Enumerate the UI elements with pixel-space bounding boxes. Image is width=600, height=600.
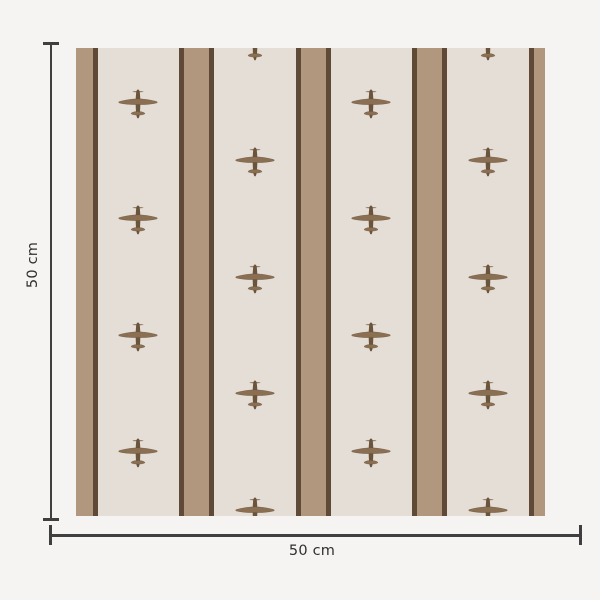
vertical-dimension-label: 50 cm: [25, 242, 41, 288]
airplane-icon: [468, 497, 508, 517]
airplane-icon: [118, 438, 158, 470]
airplane-icon: [235, 48, 275, 63]
airplane-icon: [468, 264, 508, 296]
airplane-icon: [235, 264, 275, 296]
airplane-icon: [118, 89, 158, 121]
horizontal-dimension-label: 50 cm: [289, 543, 335, 559]
vertical-dimension-line: [50, 43, 52, 520]
stripe: [179, 48, 214, 516]
airplane-icon: [351, 438, 391, 470]
airplane-icon: [235, 147, 275, 179]
airplane-icon: [235, 497, 275, 517]
airplane-icon: [351, 205, 391, 237]
airplane-icon: [468, 147, 508, 179]
airplane-icon: [351, 89, 391, 121]
airplane-icon: [118, 322, 158, 354]
airplane-icon: [468, 48, 508, 63]
airplane-icon: [118, 205, 158, 237]
vertical-dimension-tick-bottom: [43, 518, 59, 521]
horizontal-dimension-tick-right: [579, 525, 582, 545]
wallpaper-mockup: 50 cm 50 cm: [0, 0, 600, 600]
stripe: [296, 48, 331, 516]
pattern-swatch: [76, 48, 545, 516]
airplane-icon: [235, 380, 275, 412]
stripe: [529, 48, 546, 516]
vertical-dimension-tick-top: [43, 42, 59, 45]
airplane-icon: [351, 322, 391, 354]
airplane-icon: [468, 380, 508, 412]
horizontal-dimension-tick-left: [49, 525, 52, 545]
stripe: [412, 48, 447, 516]
stripe: [76, 48, 98, 516]
horizontal-dimension-line: [49, 534, 582, 537]
